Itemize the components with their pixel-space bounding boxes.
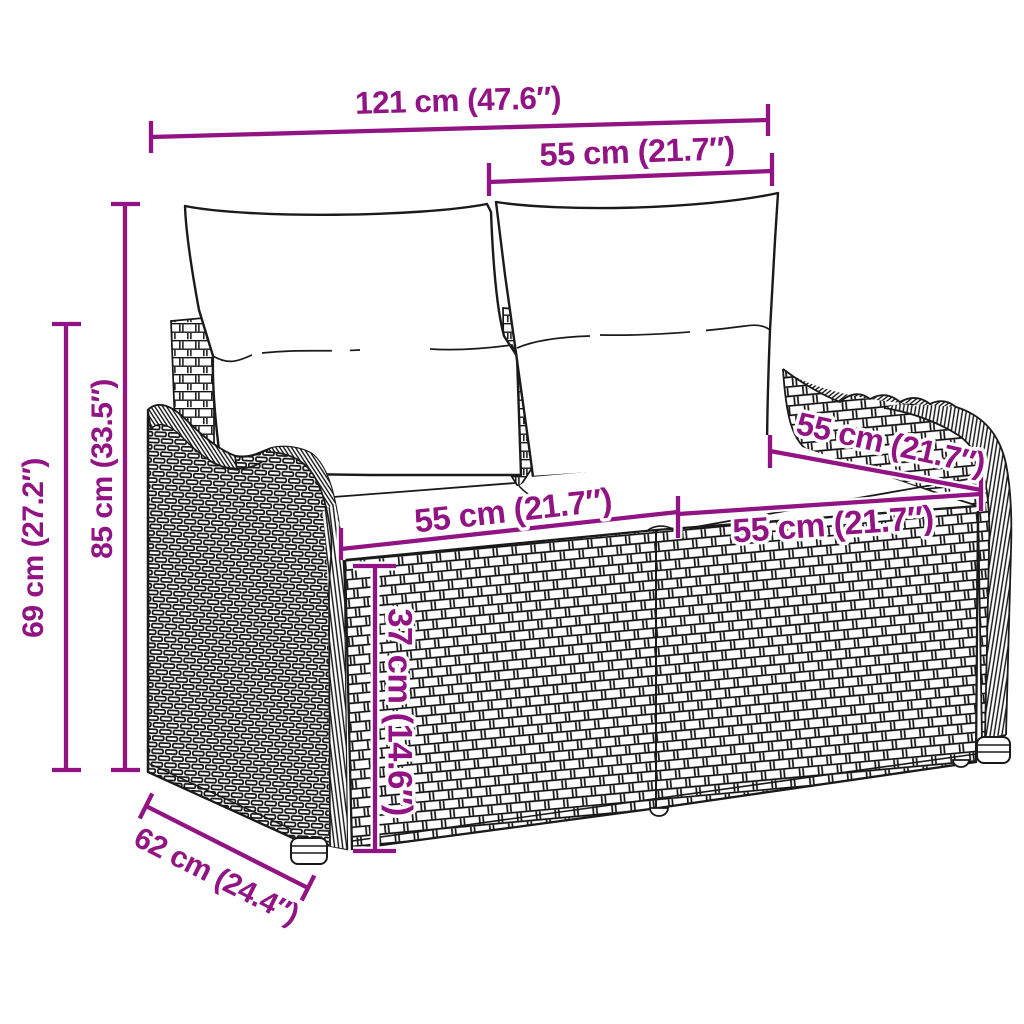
svg-text:69 cm (27.2″): 69 cm (27.2″): [17, 458, 50, 638]
svg-text:85 cm (33.5″): 85 cm (33.5″): [86, 379, 119, 559]
svg-text:37 cm (14.6″): 37 cm (14.6″): [381, 608, 419, 816]
svg-text:55 cm (21.7″): 55 cm (21.7″): [539, 130, 735, 173]
svg-text:121 cm (47.6″): 121 cm (47.6″): [355, 79, 562, 121]
